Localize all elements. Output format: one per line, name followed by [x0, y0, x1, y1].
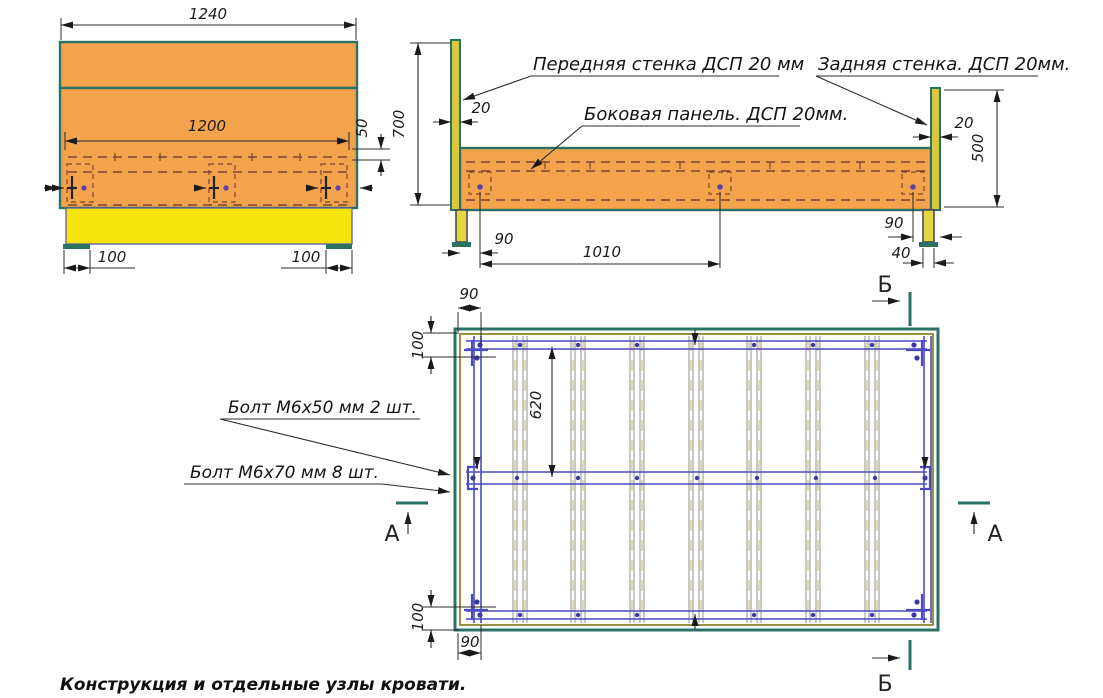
headboard-top-panel: [60, 42, 357, 88]
front-wall: [451, 40, 460, 210]
dim-20-front: 20: [433, 99, 491, 122]
plan-view: 90 100 620 100 90: [184, 273, 1003, 697]
svg-text:А: А: [384, 522, 399, 547]
section-b-bottom: Б: [872, 640, 910, 697]
blueprint-page: 1240 1200: [0, 0, 1103, 698]
label-back-wall: Задняя стенка. ДСП 20мм.: [816, 54, 1070, 125]
dim-height: 700: [390, 110, 408, 139]
dim-foot-left: 100: [64, 248, 135, 274]
dim-inner-width: 1200: [188, 117, 226, 135]
svg-text:100: 100: [292, 248, 321, 266]
dim-rail-offset: 50: [353, 118, 371, 137]
dim-20-back: 20: [913, 114, 974, 137]
front-leg: [456, 210, 467, 242]
svg-text:1010: 1010: [583, 243, 621, 261]
back-foot: [919, 242, 938, 247]
svg-text:90: 90: [494, 230, 513, 248]
svg-text:Болт М6х50 мм 2 шт.: Болт М6х50 мм 2 шт.: [228, 398, 417, 418]
dim-1240: 1240: [61, 5, 356, 40]
label-front-wall: Передняя стенка ДСП 20 мм: [463, 54, 804, 100]
svg-text:100: 100: [409, 603, 427, 632]
svg-text:Б: Б: [877, 273, 892, 298]
dim-500: 500: [944, 90, 1004, 207]
svg-text:90: 90: [884, 214, 903, 232]
section-b-top: Б: [872, 273, 910, 326]
svg-text:Передняя стенка ДСП 20 мм: Передняя стенка ДСП 20 мм: [533, 54, 804, 75]
svg-text:20: 20: [471, 99, 490, 117]
svg-text:90: 90: [459, 285, 478, 303]
svg-text:90: 90: [460, 633, 479, 651]
back-wall: [931, 88, 940, 210]
svg-text:Боковая панель. ДСП 20мм.: Боковая панель. ДСП 20мм.: [584, 104, 848, 125]
svg-text:100: 100: [98, 248, 127, 266]
figure-caption: Конструкция и отдельные узлы кровати.: [60, 675, 466, 695]
dim-40-leg: 40: [891, 244, 954, 268]
foot-left: [63, 244, 90, 249]
svg-text:Болт М6х70 мм 8 шт.: Болт М6х70 мм 8 шт.: [190, 463, 379, 483]
svg-text:А: А: [987, 522, 1002, 547]
svg-text:40: 40: [891, 244, 910, 262]
svg-text:100: 100: [409, 331, 427, 360]
section-a-right: А: [958, 503, 1003, 547]
front-foot: [452, 242, 471, 247]
dim-foot-right: 100: [281, 248, 352, 274]
front-view: 1240 1200: [44, 5, 390, 274]
base-panel: [66, 208, 352, 244]
side-view: 700: [390, 40, 1070, 268]
svg-text:Задняя стенка. ДСП 20мм.: Задняя стенка. ДСП 20мм.: [818, 54, 1070, 75]
svg-text:20: 20: [954, 114, 973, 132]
dim-total-width: 1240: [189, 5, 227, 23]
foot-right: [326, 244, 352, 249]
bed-technical-drawing: 1240 1200: [0, 0, 1103, 698]
label-bolt-m6x70: Болт М6х70 мм 8 шт.: [184, 463, 450, 492]
svg-text:500: 500: [969, 134, 987, 163]
section-a-left: А: [384, 503, 428, 547]
back-leg: [923, 210, 934, 242]
svg-text:620: 620: [527, 391, 545, 420]
svg-text:Б: Б: [877, 672, 892, 697]
